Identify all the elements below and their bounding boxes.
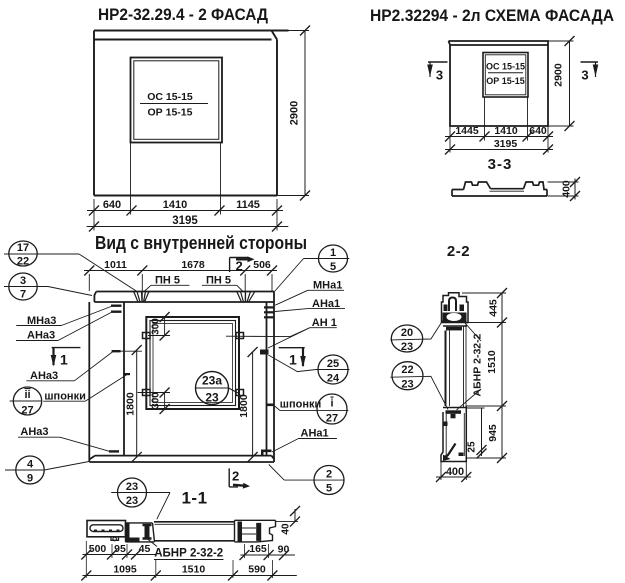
svg-text:ОР 15-15: ОР 15-15 xyxy=(486,76,525,86)
svg-text:500: 500 xyxy=(89,543,107,555)
svg-text:165: 165 xyxy=(249,543,267,555)
svg-text:1678: 1678 xyxy=(181,259,205,271)
svg-text:АНа3: АНа3 xyxy=(20,426,48,438)
svg-text:300: 300 xyxy=(151,392,162,409)
svg-text:9: 9 xyxy=(27,473,33,485)
svg-text:1145: 1145 xyxy=(236,199,260,211)
svg-text:1510: 1510 xyxy=(182,564,206,576)
svg-text:506: 506 xyxy=(253,259,271,271)
svg-text:640: 640 xyxy=(529,125,547,137)
svg-text:МНа1: МНа1 xyxy=(313,280,342,292)
svg-text:4: 4 xyxy=(27,459,34,471)
svg-text:17: 17 xyxy=(17,242,29,254)
svg-text:400: 400 xyxy=(446,466,464,478)
svg-text:2: 2 xyxy=(326,469,332,481)
svg-text:45: 45 xyxy=(139,543,151,555)
svg-text:2: 2 xyxy=(232,469,239,484)
svg-text:ПН 5: ПН 5 xyxy=(206,275,231,287)
svg-text:АНа3: АНа3 xyxy=(30,370,58,382)
svg-text:25: 25 xyxy=(467,441,478,453)
svg-text:23: 23 xyxy=(401,341,413,353)
svg-text:3195: 3195 xyxy=(172,215,198,227)
svg-text:5: 5 xyxy=(330,261,336,273)
svg-text:23: 23 xyxy=(205,391,219,405)
svg-text:1: 1 xyxy=(330,247,336,259)
svg-text:3: 3 xyxy=(20,275,26,287)
svg-text:АНа3: АНа3 xyxy=(27,330,55,342)
svg-text:945: 945 xyxy=(487,424,499,442)
svg-text:шпонки: шпонки xyxy=(280,399,321,411)
svg-text:445: 445 xyxy=(488,299,500,317)
svg-text:1800: 1800 xyxy=(238,394,250,418)
svg-text:590: 590 xyxy=(248,564,266,576)
svg-text:40: 40 xyxy=(281,523,292,535)
svg-text:400: 400 xyxy=(561,180,573,198)
svg-text:2900: 2900 xyxy=(553,63,565,87)
svg-text:27: 27 xyxy=(21,405,33,417)
svg-text:3: 3 xyxy=(436,68,443,83)
svg-text:23: 23 xyxy=(126,481,138,493)
svg-text:1800: 1800 xyxy=(125,392,137,416)
svg-text:1410: 1410 xyxy=(163,199,187,211)
svg-text:ОР 15-15: ОР 15-15 xyxy=(148,107,193,119)
svg-text:НР2-32.29.4 - 2 ФАСАД: НР2-32.29.4 - 2 ФАСАД xyxy=(98,5,268,24)
svg-text:Вид с внутренней стороны: Вид с внутренней стороны xyxy=(95,233,307,253)
svg-text:90: 90 xyxy=(278,544,290,556)
svg-text:ОС 15-15: ОС 15-15 xyxy=(486,62,525,72)
svg-text:24: 24 xyxy=(327,373,340,385)
svg-text:22: 22 xyxy=(401,364,413,376)
svg-text:2: 2 xyxy=(236,259,243,274)
svg-text:1410: 1410 xyxy=(494,125,518,137)
svg-text:2900: 2900 xyxy=(289,101,301,125)
svg-text:7: 7 xyxy=(20,289,26,301)
svg-text:23: 23 xyxy=(126,495,138,507)
svg-text:95: 95 xyxy=(114,543,126,555)
svg-text:ii: ii xyxy=(24,389,30,401)
svg-text:АБНР 2-32-2: АБНР 2-32-2 xyxy=(154,548,223,560)
svg-text:3-3: 3-3 xyxy=(488,156,513,173)
svg-text:5: 5 xyxy=(326,483,332,495)
svg-text:АБНР 2-32-2: АБНР 2-32-2 xyxy=(472,333,484,396)
svg-text:АНа1: АНа1 xyxy=(301,428,329,440)
svg-text:ОС 15-15: ОС 15-15 xyxy=(147,91,193,103)
svg-text:23а: 23а xyxy=(202,374,222,388)
svg-text:2-2: 2-2 xyxy=(447,243,470,260)
svg-text:300: 300 xyxy=(151,318,162,335)
svg-text:25: 25 xyxy=(327,358,339,370)
svg-text:1445: 1445 xyxy=(455,125,479,137)
svg-text:20: 20 xyxy=(401,327,413,339)
svg-text:ПН 5: ПН 5 xyxy=(155,275,180,287)
svg-text:3195: 3195 xyxy=(494,138,518,150)
svg-text:640: 640 xyxy=(103,199,121,211)
svg-text:22: 22 xyxy=(17,256,29,268)
svg-text:i: i xyxy=(330,398,333,410)
svg-text:1510: 1510 xyxy=(486,350,498,374)
svg-text:1: 1 xyxy=(60,352,68,368)
svg-text:1011: 1011 xyxy=(104,259,127,271)
svg-text:шпонки: шпонки xyxy=(44,391,85,403)
svg-text:1-1: 1-1 xyxy=(181,489,207,508)
svg-text:НР2.32294 - 2л СХЕМА ФАСАДА: НР2.32294 - 2л СХЕМА ФАСАДА xyxy=(370,7,614,25)
svg-text:3: 3 xyxy=(581,68,588,83)
svg-text:23: 23 xyxy=(401,379,413,391)
svg-text:27: 27 xyxy=(326,413,338,425)
svg-text:1095: 1095 xyxy=(113,564,137,576)
svg-text:АН 1: АН 1 xyxy=(312,317,337,329)
svg-text:1: 1 xyxy=(289,352,297,368)
